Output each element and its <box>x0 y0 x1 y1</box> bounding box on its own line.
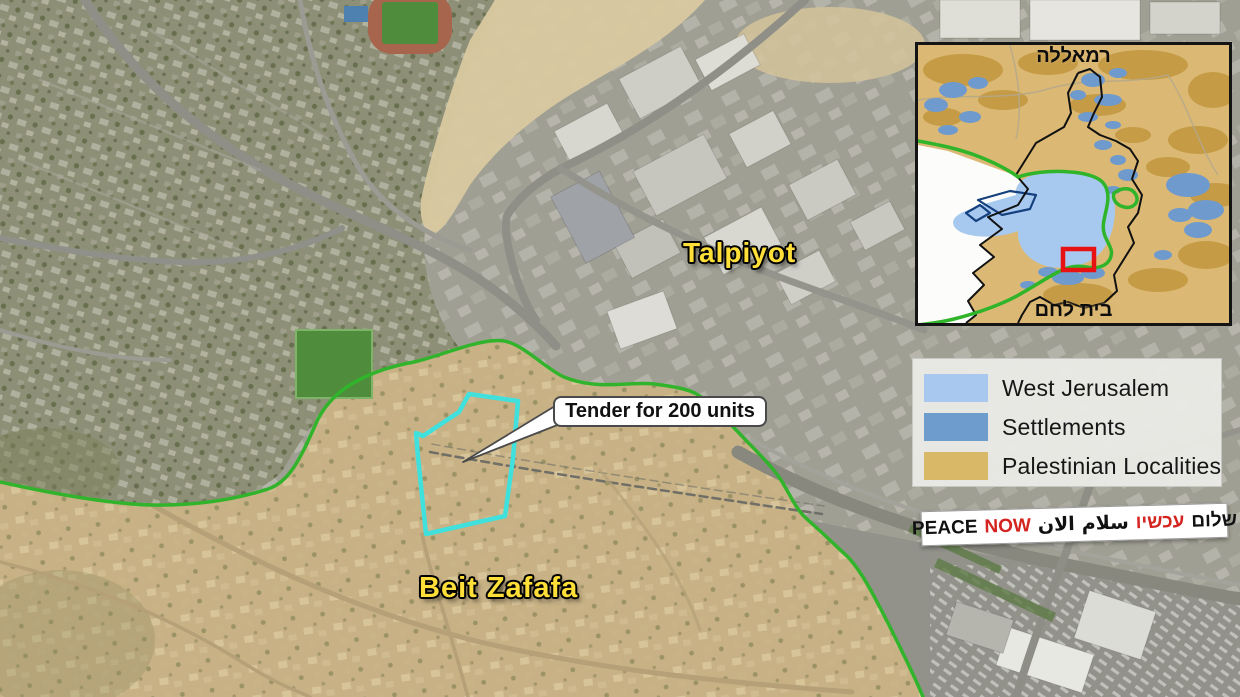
logo-text-now: NOW <box>984 515 1031 538</box>
logo-text-salam: سلام <box>1081 511 1129 535</box>
legend-label: Settlements <box>1002 414 1126 441</box>
logo-text-shalom: שלום <box>1191 509 1237 532</box>
legend-swatch-palestinian-localities <box>924 452 988 480</box>
label-talpiyot: Talpiyot <box>683 237 796 269</box>
logo-text-alan: الان <box>1038 513 1076 537</box>
legend-swatch-west-jerusalem <box>924 374 988 402</box>
logo-text-peace: PEACE <box>912 516 978 540</box>
tender-callout: Tender for 200 units <box>553 396 767 427</box>
legend-label: West Jerusalem <box>1002 375 1169 402</box>
tender-callout-text: Tender for 200 units <box>565 400 755 423</box>
legend-label: Palestinian Localities <box>1002 453 1221 480</box>
map-legend: West Jerusalem Settlements Palestinian L… <box>912 358 1222 487</box>
legend-item-palestinian-localities: Palestinian Localities <box>924 448 1221 484</box>
map-screenshot: Tender for 200 units Talpiyot Beit Zafaf… <box>0 0 1240 697</box>
inset-map-graphic <box>918 45 1229 323</box>
legend-item-west-jerusalem: West Jerusalem <box>924 370 1221 406</box>
label-beit-zafafa: Beit Zafafa <box>419 572 578 605</box>
inset-overview-map: רמאללה בית לחם <box>915 42 1232 326</box>
legend-swatch-settlements <box>924 413 988 441</box>
inset-label-bethlehem: בית לחם <box>918 299 1229 322</box>
inset-label-ramallah: רמאללה <box>918 45 1229 68</box>
legend-item-settlements: Settlements <box>924 409 1221 445</box>
logo-text-achshav: עכשיו <box>1135 510 1184 533</box>
soccer-field <box>296 330 372 398</box>
